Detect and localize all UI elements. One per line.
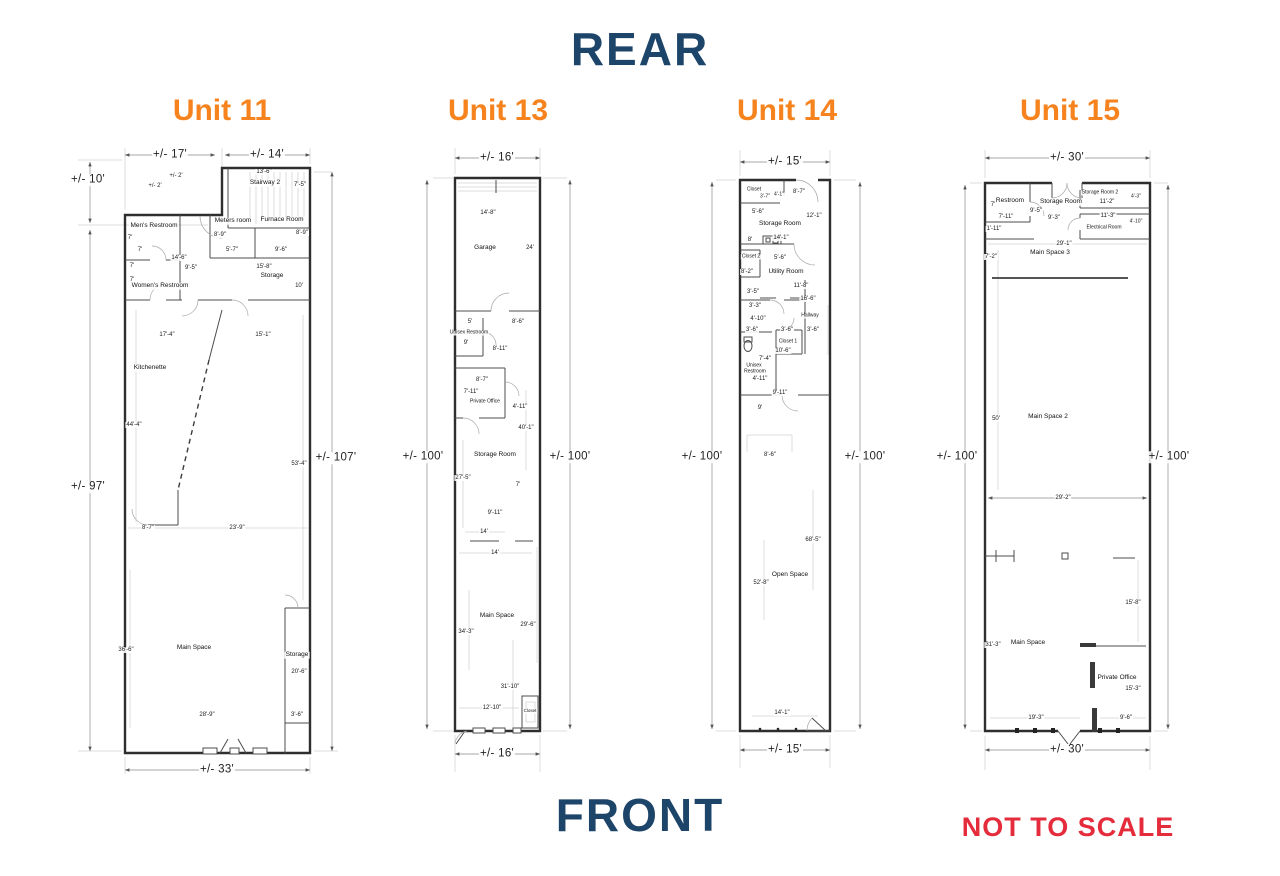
unit-11-floor-plan: +/- 17'+/- 14'+/- 10'+/- 97'+/- 107'+/- … (70, 140, 360, 790)
dimension-label: 31'-3" (984, 642, 1001, 648)
room-label: Main Space (1010, 640, 1046, 647)
unit-11-labels: +/- 17'+/- 14'+/- 10'+/- 97'+/- 107'+/- … (70, 140, 360, 790)
dimension-label: 8'-7" (141, 525, 155, 531)
room-label: Garage (473, 245, 497, 252)
front-heading: FRONT (556, 788, 724, 842)
dimension-label: 9'-5" (1029, 208, 1043, 214)
dimension-label: +/- 17' (152, 149, 188, 161)
dimension-label: 34'-3" (457, 629, 474, 635)
dimension-label: 7'-2" (984, 254, 998, 260)
dimension-label: 8' (747, 237, 753, 243)
dimension-label: +/- 15' (767, 156, 803, 168)
dimension-label: 28'-9" (198, 712, 215, 718)
dimension-label: 5'-6" (751, 209, 765, 215)
dimension-label: 11'-3" (1100, 213, 1117, 219)
dimension-label: 15'-8" (255, 264, 272, 270)
room-label: Utility Room (767, 269, 804, 276)
unit-13-floor-plan: +/- 16'+/- 100'+/- 100'+/- 16'14'-8"Gara… (395, 140, 610, 790)
dimension-label: 27'-5" (454, 475, 471, 481)
dimension-label: 8'-6" (763, 452, 777, 458)
dimension-label: 7' (990, 202, 996, 208)
room-label: Main Space (479, 613, 515, 620)
room-label: Meters room (214, 218, 252, 225)
room-label: Unisex Restroom (449, 331, 489, 336)
dimension-label: +/- 30' (1049, 744, 1085, 756)
room-label: Furnace Room (260, 217, 305, 224)
dimension-label: +/- 15' (767, 744, 803, 756)
room-label: Open Space (771, 572, 809, 579)
dimension-label: 8'-9" (295, 230, 309, 236)
dimension-label: 8'-9" (213, 232, 227, 238)
room-label: Restroom (743, 370, 767, 375)
dimension-label: 8'-7" (792, 189, 806, 195)
unit-14-labels: +/- 15'+/- 100'+/- 100'+/- 15'Closet3'-7… (660, 140, 905, 790)
room-label: Men's Restroom (129, 223, 178, 230)
dimension-label: 7' (137, 247, 143, 253)
dimension-label: +/- 97' (70, 481, 106, 493)
room-label: Kitchenette (133, 365, 168, 372)
not-to-scale-label: NOT TO SCALE (962, 812, 1175, 843)
dimension-label: 12'-10" (482, 705, 503, 711)
dimension-label: 15'-8" (1124, 600, 1141, 606)
room-label: Electrical Room (1085, 226, 1122, 231)
dimension-label: 16'-6" (799, 296, 816, 302)
dimension-label: 31'-10" (500, 684, 521, 690)
dimension-label: 15'-1" (254, 332, 271, 338)
dimension-label: 3'-6" (745, 327, 759, 333)
unit-14-title: Unit 14 (737, 94, 837, 128)
dimension-label: +/- 100' (844, 451, 887, 463)
dimension-label: +/- 16' (479, 748, 515, 760)
dimension-label: 14'-1" (772, 235, 789, 241)
dimension-label: 9'-6" (274, 247, 288, 253)
room-label: Main Space (176, 645, 212, 652)
dimension-label: +/- 2' (168, 173, 183, 179)
unit-15-title: Unit 15 (1020, 94, 1120, 128)
dimension-label: +/- 100' (1148, 451, 1191, 463)
dimension-label: 9' (757, 405, 763, 411)
dimension-label: 14' (479, 529, 489, 535)
dimension-label: 36'-6" (117, 647, 134, 653)
room-label: Closet (523, 709, 538, 714)
dimension-label: 14'-8" (479, 210, 496, 216)
rear-heading: REAR (571, 22, 709, 76)
room-label: Storage (260, 273, 285, 280)
room-label: Stairway 2 (249, 180, 281, 187)
room-label: Closet 2 (741, 255, 761, 260)
dimension-label: 44'-4" (125, 422, 142, 428)
dimension-label: 11'-8" (793, 283, 810, 289)
unit-11-title: Unit 11 (173, 94, 271, 128)
dimension-label: 3'-7" (759, 195, 771, 200)
dimension-label: 7'-11" (998, 214, 1015, 220)
room-label: Restroom (995, 198, 1025, 205)
dimension-label: +/- 100' (549, 451, 592, 463)
dimension-label: 4'-11" (512, 404, 529, 410)
dimension-label: 19'-3" (1027, 715, 1044, 721)
unit-14-floor-plan: +/- 15'+/- 100'+/- 100'+/- 15'Closet3'-7… (660, 140, 905, 790)
dimension-label: 1'-11" (986, 226, 1003, 232)
dimension-label: 5'-6" (773, 255, 787, 261)
room-label: Closet 1 (778, 340, 798, 345)
dimension-label: 9' (463, 340, 469, 346)
dimension-label: 3'-3" (748, 303, 762, 309)
dimension-label: 7'-11" (463, 389, 480, 395)
dimension-label: 14'-6" (170, 255, 187, 261)
dimension-label: 5' (467, 319, 473, 325)
dimension-label: 3'-6" (780, 327, 794, 333)
dimension-label: 5'-7" (225, 247, 239, 253)
room-label: Storage (285, 652, 310, 659)
dimension-label: 8'-6" (511, 319, 525, 325)
dimension-label: 3'-6" (806, 327, 820, 333)
dimension-label: 7'-5" (293, 182, 307, 188)
dimension-label: 7' (127, 235, 133, 241)
room-label: Hallway (800, 314, 820, 319)
dimension-label: +/- 100' (681, 451, 724, 463)
room-label: Main Space 2 (1027, 414, 1069, 421)
floor-plan-sheet: REAR Unit 11 Unit 13 Unit 14 Unit 15 (0, 0, 1280, 876)
dimension-label: 7' (129, 263, 135, 269)
room-label: Storage Room (473, 452, 517, 459)
dimension-label: 24' (525, 245, 535, 251)
dimension-label: +/- 30' (1049, 152, 1085, 164)
dimension-label: +/- 2' (147, 183, 162, 189)
dimension-label: 4'-3" (1130, 195, 1142, 200)
dimension-label: 4'-10" (1129, 220, 1144, 225)
dimension-label: +/- 100' (936, 451, 979, 463)
dimension-label: 4'-1" (773, 193, 785, 198)
dimension-label: 9'-11" (487, 510, 504, 516)
dimension-label: +/- 14' (249, 149, 285, 161)
dimension-label: 20'-6" (290, 669, 307, 675)
room-label: Closet (746, 188, 762, 193)
dimension-label: +/- 10' (70, 174, 106, 186)
dimension-label: +/- 33' (199, 764, 235, 776)
dimension-label: 7'-4" (758, 356, 772, 362)
dimension-label: 9'-5" (184, 265, 198, 271)
dimension-label: 68'-5" (804, 537, 821, 543)
room-label: Storage Room (1039, 199, 1083, 206)
dimension-label: 9'-11" (772, 390, 789, 396)
dimension-label: 50' (991, 416, 1001, 422)
dimension-label: 8'-7" (475, 377, 489, 383)
dimension-label: 8'-11" (492, 346, 509, 352)
room-label: Storage Room 2 (1081, 191, 1119, 196)
dimension-label: 8'-2" (740, 269, 754, 275)
unit-15-floor-plan: +/- 30'+/- 100'+/- 100'+/- 30'Restroom7'… (930, 140, 1190, 790)
dimension-label: 29'-6" (519, 622, 536, 628)
dimension-label: 15'-3" (1124, 686, 1141, 692)
room-label: Private Office (1097, 675, 1138, 682)
dimension-label: 12'-1" (805, 213, 822, 219)
dimension-label: 14'-1" (773, 710, 790, 716)
dimension-label: 3'-5" (746, 289, 760, 295)
unit-15-labels: +/- 30'+/- 100'+/- 100'+/- 30'Restroom7'… (930, 140, 1190, 790)
dimension-label: 9'-6" (1119, 715, 1133, 721)
dimension-label: 52'-8" (752, 580, 769, 586)
dimension-label: 29'-2" (1054, 495, 1071, 501)
unit-13-labels: +/- 16'+/- 100'+/- 100'+/- 16'14'-8"Gara… (395, 140, 610, 790)
room-label: Storage Room (758, 221, 802, 228)
dimension-label: +/- 100' (402, 451, 445, 463)
room-label: Main Space 3 (1029, 250, 1071, 257)
dimension-label: 13'-6" (255, 169, 272, 175)
room-label: Women's Restroom (131, 283, 190, 290)
dimension-label: 10' (294, 283, 304, 289)
dimension-label: 7' (515, 482, 521, 488)
dimension-label: 4'-11" (752, 376, 769, 382)
dimension-label: 40'-1" (517, 425, 534, 431)
dimension-label: +/- 107' (315, 452, 358, 464)
room-label: Private Office (469, 400, 501, 405)
unit-13-title: Unit 13 (448, 94, 548, 128)
dimension-label: 3'-6" (290, 712, 304, 718)
dimension-label: 11'-2" (1099, 199, 1116, 205)
dimension-label: 10'-6" (774, 348, 791, 354)
dimension-label: 17'-4" (158, 332, 175, 338)
dimension-label: 9'-3" (1047, 215, 1061, 221)
dimension-label: 4'-10" (749, 316, 766, 322)
dimension-label: +/- 16' (479, 152, 515, 164)
dimension-label: 14' (490, 550, 500, 556)
dimension-label: 29'-1" (1055, 241, 1072, 247)
dimension-label: 23'-9" (228, 525, 245, 531)
dimension-label: 53'-4" (290, 461, 307, 467)
